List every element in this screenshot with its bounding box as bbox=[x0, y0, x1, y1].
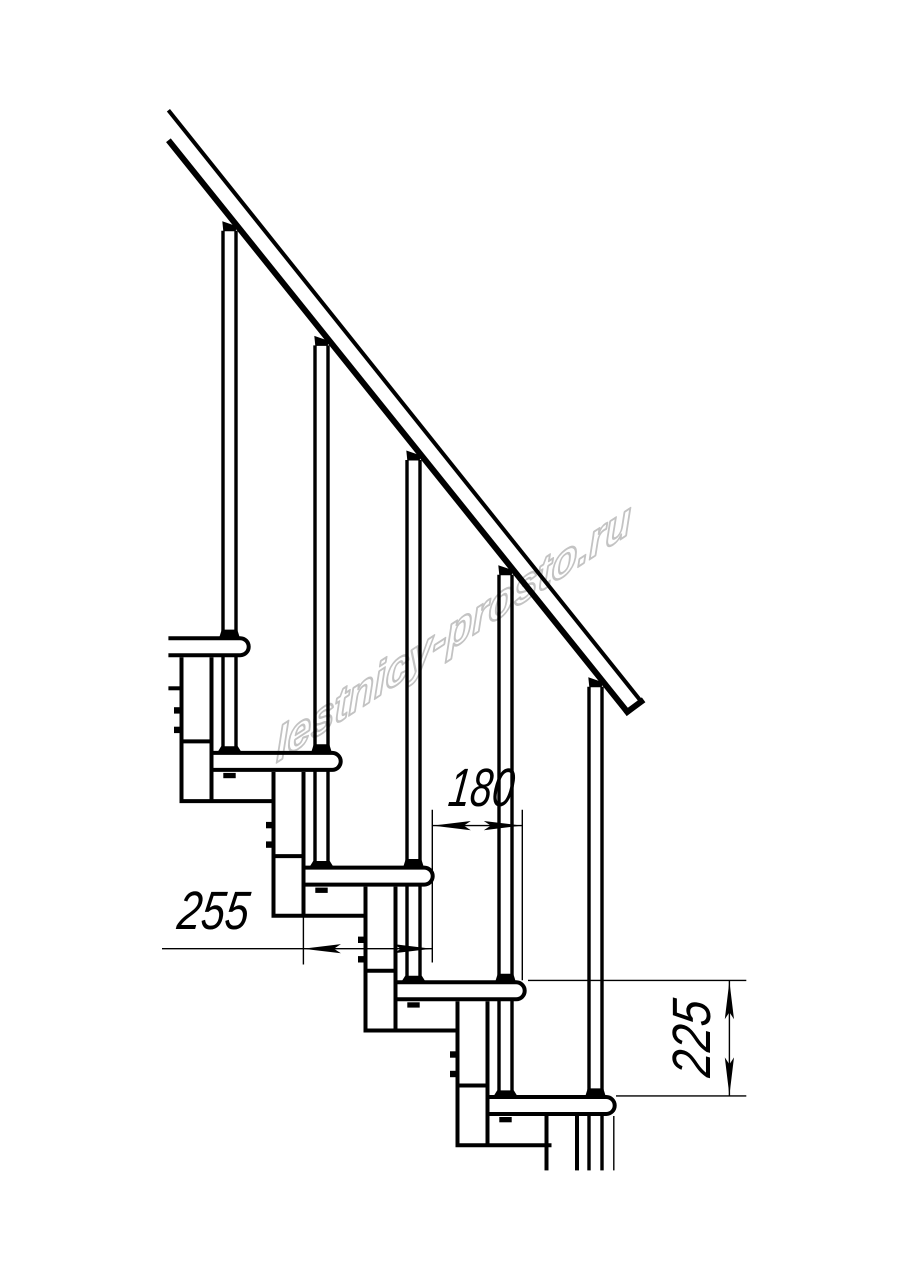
svg-text:255: 255 bbox=[174, 881, 254, 941]
svg-text:180: 180 bbox=[446, 758, 518, 818]
svg-text:225: 225 bbox=[662, 995, 722, 1080]
